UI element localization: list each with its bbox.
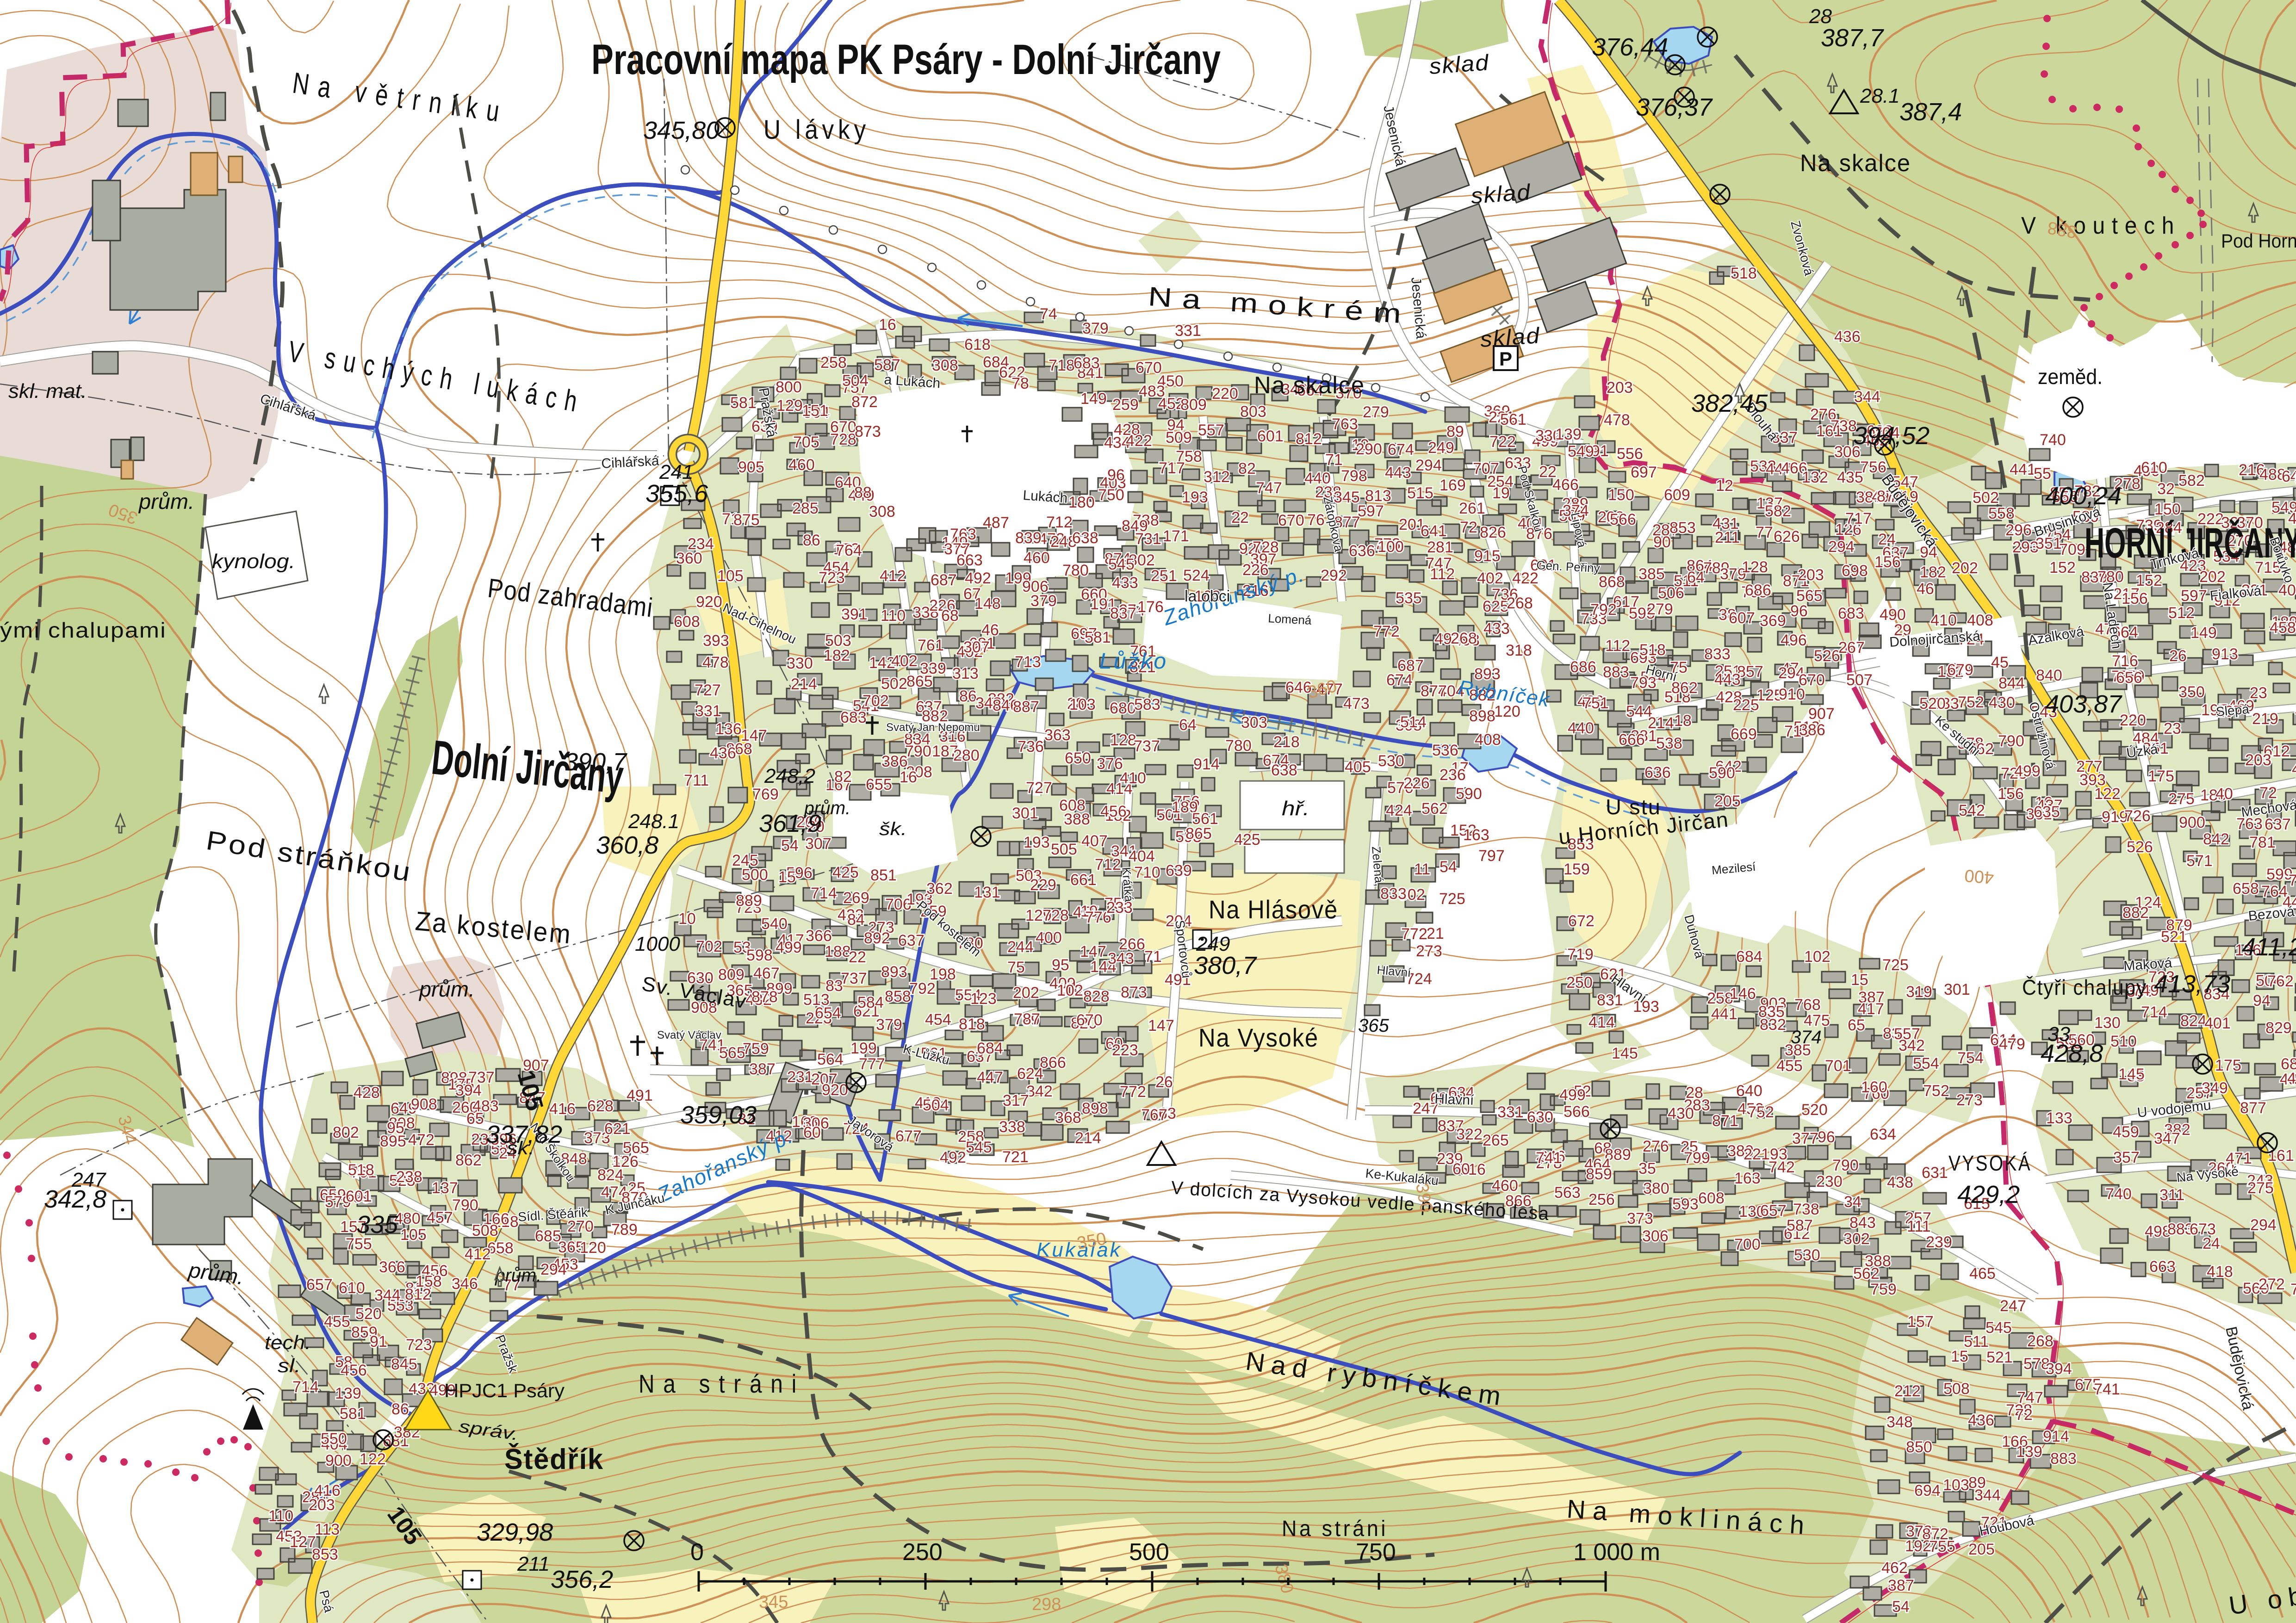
svg-text:518: 518 [1731, 265, 1757, 282]
svg-text:433: 433 [1112, 574, 1138, 592]
svg-text:388: 388 [1865, 1252, 1891, 1270]
svg-text:752: 752 [1748, 1103, 1774, 1121]
svg-text:96: 96 [1107, 466, 1125, 484]
svg-text:403,87: 403,87 [2045, 690, 2122, 718]
svg-text:563: 563 [1554, 1184, 1581, 1202]
svg-text:211: 211 [1715, 529, 1740, 546]
svg-text:V koutech: V koutech [2021, 212, 2181, 239]
svg-text:265: 265 [1483, 1132, 1509, 1149]
svg-text:357: 357 [2113, 1149, 2140, 1166]
svg-text:100: 100 [1378, 538, 1404, 556]
svg-text:122: 122 [360, 1450, 386, 1468]
svg-text:249: 249 [1428, 439, 1454, 457]
svg-text:853: 853 [312, 1546, 338, 1563]
svg-text:386: 386 [1799, 721, 1825, 739]
svg-text:28: 28 [1809, 5, 1832, 28]
svg-text:369: 369 [1760, 612, 1786, 630]
svg-text:491: 491 [627, 1087, 653, 1104]
svg-text:436: 436 [1834, 328, 1861, 346]
svg-text:717: 717 [1845, 510, 1872, 527]
svg-text:96: 96 [1818, 1128, 1835, 1146]
svg-text:360,8: 360,8 [596, 831, 658, 859]
svg-text:626: 626 [1774, 528, 1800, 545]
svg-text:U lávky: U lávky [763, 115, 870, 145]
svg-text:šk.: šk. [879, 819, 907, 839]
svg-text:331: 331 [1175, 322, 1201, 340]
svg-text:prům.: prům. [138, 489, 194, 514]
svg-text:712: 712 [1046, 514, 1073, 531]
svg-text:387: 387 [1888, 1577, 1914, 1594]
svg-text:478: 478 [702, 654, 729, 671]
svg-text:373: 373 [1627, 1210, 1653, 1227]
svg-text:738: 738 [1793, 1201, 1819, 1218]
svg-text:781: 781 [2249, 834, 2276, 851]
svg-text:307: 307 [805, 835, 832, 853]
svg-text:0: 0 [690, 1539, 704, 1566]
svg-text:236: 236 [1440, 766, 1466, 784]
svg-text:429,2: 429,2 [1957, 1181, 2020, 1208]
svg-text:317: 317 [1003, 1092, 1029, 1109]
svg-text:725: 725 [1882, 956, 1909, 974]
svg-text:641: 641 [1421, 522, 1447, 540]
svg-text:590: 590 [1709, 764, 1735, 782]
svg-text:275: 275 [2247, 1179, 2274, 1197]
svg-text:128: 128 [1742, 558, 1768, 576]
svg-text:799: 799 [1684, 1149, 1710, 1167]
svg-text:716: 716 [2290, 1281, 2296, 1298]
svg-text:272: 272 [2259, 1276, 2285, 1293]
svg-text:872: 872 [851, 393, 878, 411]
svg-text:879: 879 [2166, 917, 2192, 934]
svg-text:89: 89 [1446, 423, 1464, 440]
svg-text:410: 410 [1930, 612, 1957, 629]
svg-text:714: 714 [2141, 1004, 2167, 1021]
svg-text:457: 457 [427, 1209, 453, 1227]
svg-text:723: 723 [406, 1336, 432, 1354]
svg-text:608: 608 [674, 613, 700, 631]
svg-text:94: 94 [2253, 992, 2271, 1010]
svg-text:443: 443 [1385, 464, 1411, 482]
svg-text:248.1: 248.1 [628, 810, 679, 833]
svg-text:425: 425 [1234, 831, 1260, 849]
svg-text:75: 75 [1007, 959, 1025, 976]
svg-text:95: 95 [1052, 956, 1069, 974]
svg-text:391: 391 [841, 606, 868, 623]
svg-text:492: 492 [965, 570, 991, 587]
svg-text:772: 772 [1373, 623, 1400, 640]
svg-text:761: 761 [918, 637, 944, 654]
svg-text:203: 203 [1798, 566, 1824, 584]
svg-text:22: 22 [1744, 1146, 1761, 1163]
svg-text:635: 635 [2034, 803, 2060, 821]
svg-text:145: 145 [2118, 1065, 2145, 1083]
svg-text:535: 535 [1396, 589, 1422, 607]
svg-text:60: 60 [1452, 1160, 1470, 1178]
svg-text:871: 871 [1712, 1112, 1738, 1130]
svg-text:845: 845 [391, 1356, 417, 1373]
svg-text:239: 239 [1926, 1233, 1952, 1251]
svg-text:744: 744 [2289, 872, 2296, 889]
svg-text:prům.: prům. [418, 977, 475, 1001]
svg-text:790: 790 [452, 1196, 478, 1214]
svg-text:478: 478 [1604, 411, 1630, 429]
svg-text:762: 762 [2267, 973, 2294, 990]
svg-text:394,52: 394,52 [1853, 422, 1930, 450]
svg-text:54: 54 [1892, 1598, 1910, 1616]
svg-text:132: 132 [1802, 469, 1828, 486]
svg-text:226: 226 [1403, 774, 1430, 792]
svg-text:214: 214 [1648, 714, 1674, 732]
svg-text:400,24: 400,24 [2045, 482, 2122, 510]
svg-text:754: 754 [1957, 1049, 1984, 1067]
svg-text:15: 15 [1851, 971, 1868, 989]
svg-text:907: 907 [1808, 705, 1835, 723]
svg-text:139: 139 [1555, 426, 1582, 443]
svg-text:520: 520 [1919, 695, 1946, 712]
svg-text:566: 566 [1610, 511, 1636, 528]
svg-text:465: 465 [1969, 1265, 1996, 1282]
svg-text:220: 220 [2120, 712, 2146, 729]
svg-text:23: 23 [2250, 684, 2267, 702]
svg-text:562: 562 [1421, 800, 1448, 818]
svg-text:268: 268 [2027, 1332, 2054, 1350]
svg-text:250: 250 [1566, 974, 1593, 991]
svg-text:878: 878 [751, 988, 778, 1006]
svg-text:502: 502 [881, 675, 907, 693]
svg-text:750: 750 [1098, 486, 1124, 504]
svg-text:281: 281 [1427, 539, 1453, 556]
svg-text:344: 344 [374, 1287, 401, 1304]
svg-text:345: 345 [759, 1592, 788, 1612]
svg-text:231: 231 [787, 1068, 813, 1086]
svg-text:Štědřík: Štědřík [504, 1443, 604, 1475]
svg-text:658: 658 [487, 1239, 514, 1257]
svg-text:133: 133 [2046, 1109, 2073, 1127]
svg-text:130: 130 [2094, 1014, 2121, 1032]
svg-text:430: 430 [1668, 1105, 1694, 1122]
svg-text:203: 203 [309, 1496, 335, 1514]
svg-text:680: 680 [1110, 700, 1136, 717]
svg-text:387: 387 [749, 1060, 776, 1078]
svg-text:610: 610 [339, 1279, 365, 1297]
svg-text:24: 24 [2203, 1235, 2220, 1252]
svg-text:193: 193 [1182, 489, 1208, 506]
svg-text:892: 892 [864, 929, 890, 947]
svg-text:502: 502 [1973, 489, 1999, 507]
svg-text:Na stráni: Na stráni [1282, 1517, 1388, 1541]
svg-text:86: 86 [391, 1400, 409, 1418]
svg-text:156: 156 [2122, 590, 2148, 607]
svg-text:714: 714 [811, 885, 837, 902]
svg-text:362: 362 [926, 880, 953, 898]
svg-text:723: 723 [819, 569, 845, 587]
svg-text:22: 22 [849, 948, 866, 966]
svg-text:379: 379 [1082, 320, 1109, 337]
svg-text:338: 338 [999, 1118, 1025, 1136]
svg-text:454: 454 [925, 1011, 951, 1028]
svg-text:294: 294 [2250, 1216, 2277, 1234]
svg-text:514: 514 [1400, 713, 1427, 731]
svg-text:385: 385 [1638, 565, 1665, 583]
svg-text:139: 139 [335, 1385, 361, 1402]
svg-text:137: 137 [432, 1179, 458, 1197]
svg-text:169: 169 [1440, 477, 1466, 494]
svg-text:462: 462 [1881, 1559, 1908, 1577]
svg-text:558: 558 [1988, 505, 2015, 522]
svg-text:175: 175 [2148, 768, 2174, 785]
svg-text:152: 152 [2136, 572, 2162, 589]
svg-text:Lukách: Lukách [1023, 488, 1068, 506]
svg-text:71: 71 [1144, 948, 1162, 966]
svg-text:280: 280 [953, 747, 980, 764]
svg-text:670: 670 [1278, 512, 1304, 529]
svg-text:202: 202 [1013, 984, 1039, 1002]
svg-text:686: 686 [1745, 582, 1771, 599]
svg-text:72: 72 [2015, 1406, 2033, 1424]
svg-text:714: 714 [292, 1378, 319, 1396]
svg-text:756: 756 [1860, 458, 1886, 476]
svg-text:84: 84 [847, 911, 865, 929]
svg-text:702: 702 [863, 692, 889, 710]
svg-text:705: 705 [793, 434, 819, 451]
svg-text:379: 379 [1030, 592, 1057, 610]
svg-text:515: 515 [1407, 484, 1433, 502]
svg-text:920: 920 [696, 593, 722, 611]
svg-text:102: 102 [1057, 982, 1083, 999]
svg-text:764: 764 [836, 542, 862, 559]
svg-text:tech.: tech. [265, 1332, 311, 1353]
svg-text:401: 401 [2204, 1015, 2231, 1032]
svg-text:150: 150 [1608, 486, 1634, 504]
svg-text:329,98: 329,98 [477, 1518, 553, 1546]
svg-text:161: 161 [2268, 1147, 2294, 1165]
svg-text:721: 721 [1002, 1148, 1029, 1166]
svg-text:873: 873 [855, 423, 881, 440]
svg-text:33: 33 [2048, 1023, 2070, 1046]
svg-text:672: 672 [1568, 912, 1595, 930]
svg-text:674: 674 [1388, 441, 1414, 458]
svg-text:408: 408 [1475, 731, 1501, 749]
svg-text:435: 435 [1837, 469, 1863, 486]
svg-text:120: 120 [580, 1239, 606, 1257]
svg-text:657: 657 [306, 1276, 333, 1294]
svg-text:182: 182 [824, 647, 850, 664]
svg-text:110: 110 [268, 1507, 293, 1525]
svg-text:518: 518 [348, 1161, 374, 1179]
svg-text:361,9: 361,9 [759, 810, 821, 837]
svg-text:780: 780 [1225, 737, 1252, 755]
svg-text:456: 456 [341, 1362, 367, 1379]
svg-text:824: 824 [597, 1166, 624, 1184]
svg-text:256: 256 [1589, 1191, 1615, 1208]
svg-text:45: 45 [1991, 654, 2009, 671]
svg-text:679: 679 [1947, 661, 1973, 679]
svg-text:244: 244 [1007, 938, 1034, 956]
svg-text:77: 77 [1756, 524, 1773, 541]
svg-text:405: 405 [2278, 582, 2296, 599]
svg-text:425: 425 [832, 864, 859, 881]
svg-text:151: 151 [802, 402, 828, 420]
svg-text:88: 88 [854, 484, 872, 502]
svg-text:269: 269 [843, 889, 869, 907]
svg-text:508: 508 [1943, 1380, 1970, 1398]
svg-text:697: 697 [1631, 464, 1657, 481]
svg-text:la obci: la obci [1185, 588, 1230, 605]
svg-text:16: 16 [900, 768, 917, 786]
svg-text:Pod Horn: Pod Horn [2221, 230, 2296, 252]
svg-text:180: 180 [1068, 494, 1095, 511]
svg-text:487: 487 [983, 514, 1009, 532]
svg-text:15: 15 [778, 868, 796, 886]
svg-text:436: 436 [710, 744, 736, 762]
svg-text:400: 400 [1964, 866, 1995, 887]
svg-text:394: 394 [2046, 1360, 2072, 1378]
svg-text:740: 740 [2105, 1185, 2132, 1203]
svg-text:657: 657 [1760, 1202, 1787, 1220]
svg-text:112: 112 [1430, 565, 1455, 583]
svg-text:877: 877 [2240, 1099, 2266, 1117]
svg-text:436: 436 [1968, 1412, 1994, 1429]
svg-text:387,4: 387,4 [1899, 98, 1962, 126]
svg-text:422: 422 [1512, 570, 1539, 587]
svg-text:727: 727 [1026, 779, 1052, 797]
svg-text:809: 809 [1180, 396, 1207, 414]
svg-text:355,6: 355,6 [645, 480, 708, 508]
svg-text:812: 812 [1296, 430, 1322, 448]
svg-text:798: 798 [1341, 467, 1367, 485]
svg-text:713: 713 [1015, 653, 1041, 671]
svg-text:914: 914 [2043, 1428, 2069, 1445]
svg-text:313: 313 [952, 665, 979, 682]
svg-text:851: 851 [870, 867, 897, 884]
svg-text:850: 850 [1906, 1438, 1932, 1456]
svg-text:803: 803 [1240, 403, 1266, 421]
svg-text:581: 581 [1085, 629, 1111, 646]
svg-text:111: 111 [1907, 1218, 1931, 1235]
svg-text:913: 913 [2212, 645, 2238, 663]
svg-text:751: 751 [1582, 694, 1609, 712]
svg-text:458: 458 [2270, 619, 2296, 637]
svg-text:700: 700 [1734, 1236, 1761, 1253]
svg-text:HPJC1 Psáry: HPJC1 Psáry [444, 1380, 565, 1401]
svg-text:203: 203 [1607, 379, 1633, 396]
svg-text:kynolog.: kynolog. [212, 550, 295, 573]
svg-text:831: 831 [1597, 991, 1623, 1009]
svg-text:307: 307 [963, 638, 990, 656]
svg-text:441: 441 [1711, 1005, 1738, 1023]
svg-text:530: 530 [1794, 1246, 1820, 1264]
svg-text:249: 249 [1196, 933, 1230, 955]
svg-text:Lůžko: Lůžko [1099, 649, 1168, 674]
svg-text:767: 767 [1141, 1106, 1167, 1124]
svg-text:789: 789 [611, 1221, 638, 1239]
svg-text:601: 601 [1257, 427, 1284, 445]
svg-text:360: 360 [676, 550, 702, 567]
svg-text:258: 258 [820, 354, 847, 372]
svg-text:64: 64 [1687, 569, 1705, 586]
svg-text:412: 412 [465, 1245, 491, 1263]
svg-text:148: 148 [974, 595, 1001, 613]
svg-text:407: 407 [1081, 832, 1108, 850]
svg-text:460: 460 [1024, 549, 1050, 567]
svg-text:441: 441 [2010, 461, 2036, 478]
svg-text:843: 843 [1849, 1214, 1876, 1232]
svg-text:607: 607 [1729, 609, 1755, 627]
svg-text:772: 772 [1401, 925, 1427, 943]
svg-text:322: 322 [1456, 1126, 1483, 1143]
svg-text:694: 694 [1914, 1482, 1941, 1499]
svg-text:402: 402 [1477, 570, 1503, 587]
svg-text:755: 755 [1929, 1538, 1955, 1555]
svg-text:900: 900 [2179, 814, 2205, 831]
svg-text:294: 294 [1828, 538, 1855, 556]
svg-text:157: 157 [1907, 1313, 1934, 1331]
svg-text:422: 422 [1126, 432, 1152, 450]
svg-text:Slepá: Slepá [2215, 702, 2250, 719]
svg-text:545: 545 [966, 1139, 992, 1156]
svg-text:866: 866 [1040, 1054, 1066, 1072]
svg-text:507: 507 [1846, 671, 1873, 689]
svg-text:110: 110 [881, 607, 906, 625]
svg-text:218: 218 [1273, 733, 1300, 751]
svg-text:238: 238 [396, 1168, 422, 1186]
svg-text:211: 211 [517, 1553, 550, 1575]
svg-text:247: 247 [2000, 1297, 2026, 1315]
svg-text:473: 473 [1343, 695, 1370, 712]
svg-text:318: 318 [1506, 642, 1532, 659]
svg-text:22: 22 [1231, 509, 1249, 527]
svg-text:72: 72 [1460, 519, 1477, 536]
svg-text:875: 875 [733, 511, 760, 529]
svg-text:634: 634 [1870, 1126, 1896, 1143]
svg-text:636: 636 [1349, 542, 1375, 560]
svg-text:220: 220 [1212, 385, 1238, 403]
svg-text:701: 701 [1825, 1057, 1851, 1075]
svg-text:294: 294 [540, 1261, 567, 1278]
svg-text:308: 308 [869, 503, 895, 520]
svg-text:366: 366 [806, 927, 832, 945]
svg-text:159: 159 [1564, 861, 1590, 878]
svg-text:311: 311 [2159, 1186, 2184, 1204]
svg-text:914: 914 [1193, 756, 1220, 773]
svg-text:223: 223 [1112, 1041, 1138, 1059]
svg-text:405: 405 [1345, 758, 1371, 776]
svg-text:205: 205 [1968, 1541, 1995, 1558]
svg-text:34: 34 [1844, 1193, 1862, 1211]
svg-text:46: 46 [981, 621, 999, 639]
svg-text:199: 199 [850, 1040, 877, 1057]
svg-text:479: 479 [1999, 1035, 2025, 1053]
svg-text:812: 812 [405, 1286, 431, 1303]
svg-text:368: 368 [1055, 1109, 1081, 1127]
svg-text:330: 330 [787, 655, 813, 672]
svg-text:624: 624 [1017, 1065, 1043, 1083]
svg-text:VYSOKÁ: VYSOKÁ [1948, 1151, 2032, 1175]
svg-text:747: 747 [1256, 479, 1282, 497]
svg-text:380: 380 [1643, 1180, 1669, 1197]
svg-text:387,7: 387,7 [1821, 24, 1884, 52]
svg-text:587: 587 [874, 356, 900, 374]
svg-text:710: 710 [1134, 864, 1160, 881]
svg-text:460: 460 [788, 456, 815, 474]
svg-text:550: 550 [321, 1430, 347, 1448]
svg-text:337,82: 337,82 [486, 1121, 562, 1148]
svg-text:345: 345 [1334, 489, 1360, 506]
svg-text:346: 346 [452, 1275, 478, 1293]
svg-text:344: 344 [1854, 388, 1880, 406]
svg-text:308: 308 [932, 357, 958, 374]
svg-text:526: 526 [2127, 838, 2153, 856]
